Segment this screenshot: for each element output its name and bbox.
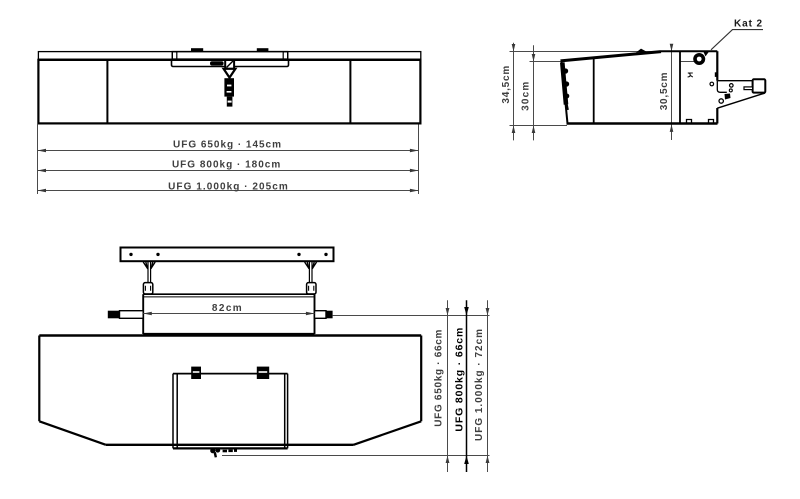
svg-text:30cm: 30cm	[521, 81, 532, 111]
svg-text:30,5cm: 30,5cm	[659, 72, 670, 111]
svg-text:UFG 1.000kg · 72cm: UFG 1.000kg · 72cm	[474, 328, 485, 441]
svg-text:UFG 650kg · 145cm: UFG 650kg · 145cm	[173, 140, 282, 151]
svg-text:UFG 1.000kg · 205cm: UFG 1.000kg · 205cm	[168, 181, 289, 192]
svg-text:UFG 650kg · 66cm: UFG 650kg · 66cm	[433, 329, 444, 427]
svg-text:82cm: 82cm	[212, 303, 243, 314]
svg-text:UFG 800kg · 66cm: UFG 800kg · 66cm	[453, 327, 465, 432]
svg-text:UFG 800kg · 180cm: UFG 800kg · 180cm	[172, 160, 281, 171]
svg-text:Kat 2: Kat 2	[734, 18, 763, 29]
svg-text:34,5cm: 34,5cm	[501, 65, 512, 104]
